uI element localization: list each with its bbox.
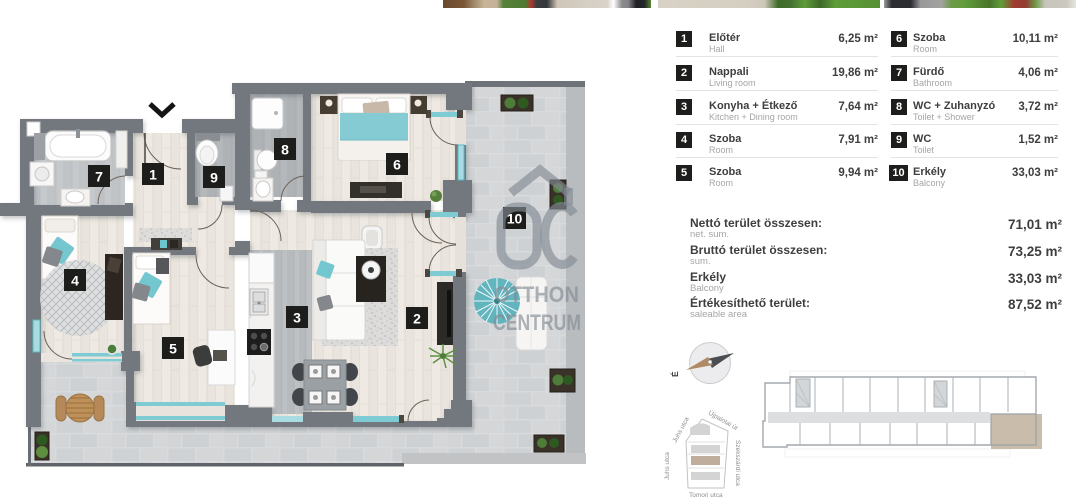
svg-text:1: 1	[149, 167, 157, 183]
svg-text:OTTHON: OTTHON	[494, 282, 579, 307]
svg-text:CENTRUM: CENTRUM	[493, 310, 581, 335]
svg-text:Szekszárdi utca: Szekszárdi utca	[734, 440, 741, 486]
svg-text:6: 6	[393, 157, 401, 173]
svg-text:4: 4	[71, 273, 79, 289]
svg-text:2: 2	[413, 311, 421, 327]
svg-text:Juhs utca: Juhs utca	[664, 452, 671, 480]
svg-text:8: 8	[281, 142, 289, 158]
svg-text:7: 7	[95, 169, 103, 185]
svg-text:5: 5	[169, 341, 177, 357]
svg-text:9: 9	[210, 170, 218, 186]
svg-text:Tomori utca: Tomori utca	[689, 492, 723, 499]
svg-text:3: 3	[293, 310, 301, 326]
svg-text:É: É	[670, 371, 680, 377]
